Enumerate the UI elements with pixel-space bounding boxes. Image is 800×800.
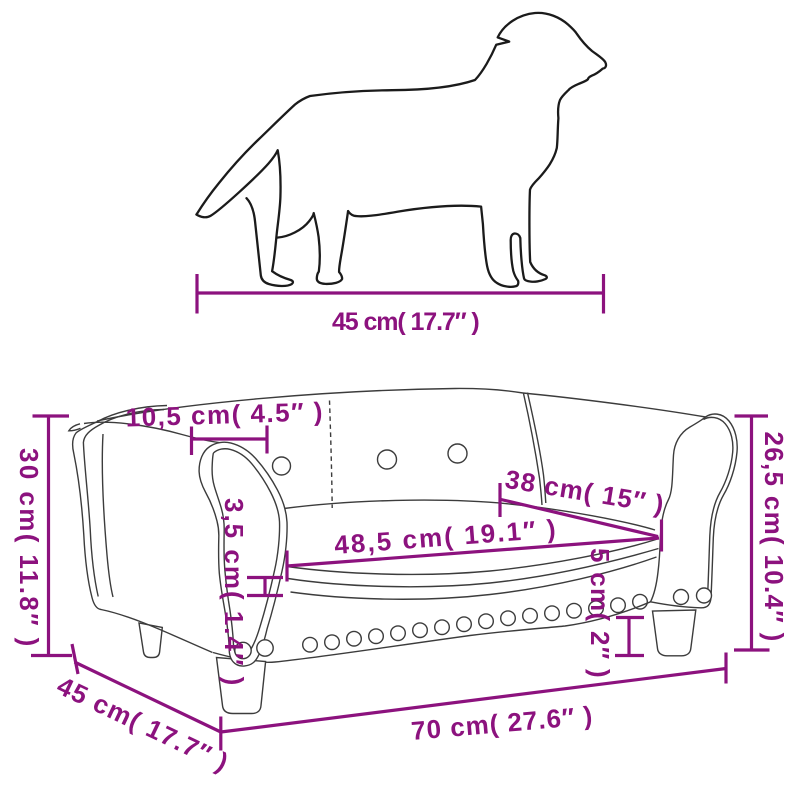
svg-text:45 cm( 17.7″ ): 45 cm( 17.7″ ) — [332, 308, 479, 336]
svg-text:10,5 cm( 4.5″ ): 10,5 cm( 4.5″ ) — [125, 396, 324, 432]
svg-text:3,5 cm( 1.4″ ): 3,5 cm( 1.4″ ) — [219, 498, 249, 687]
svg-text:5 cm( 2″ ): 5 cm( 2″ ) — [585, 548, 615, 679]
svg-text:30 cm( 11.8″ ): 30 cm( 11.8″ ) — [14, 448, 44, 649]
svg-text:26,5 cm( 10.4″ ): 26,5 cm( 10.4″ ) — [759, 432, 789, 643]
